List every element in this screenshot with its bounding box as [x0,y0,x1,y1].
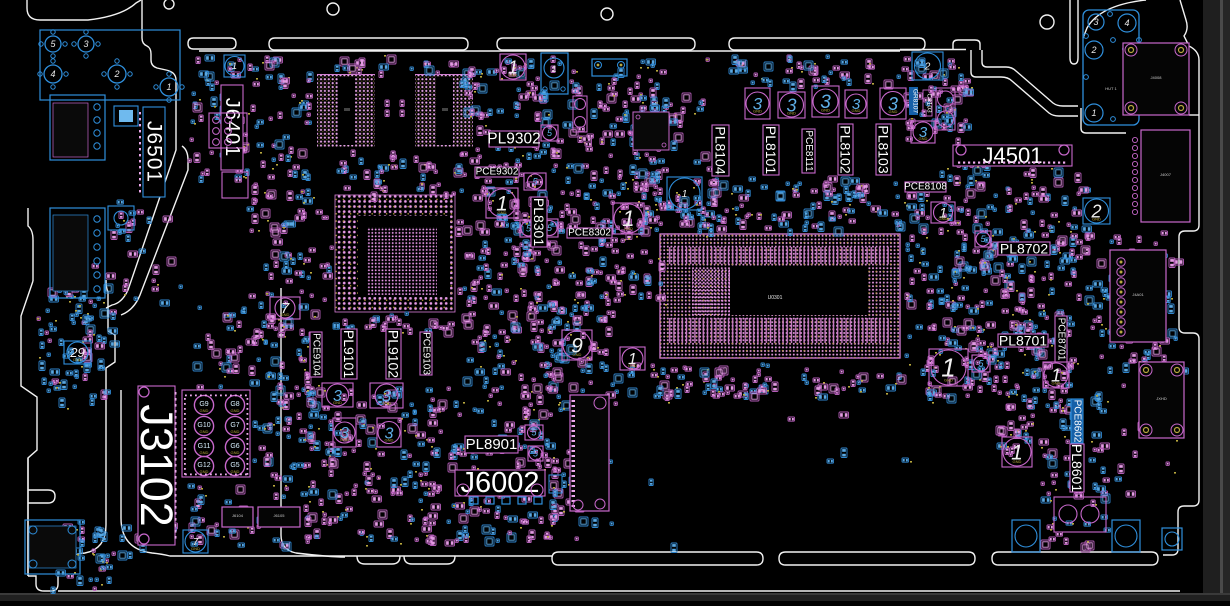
svg-text:PCE8108: PCE8108 [904,182,947,193]
svg-text:PCE8302: PCE8302 [568,228,611,239]
svg-text:PCE8602: PCE8602 [1072,400,1083,443]
svg-text:GND: GND [231,429,240,434]
svg-text:PL8102: PL8102 [838,125,854,173]
svg-text:GND: GND [1013,459,1022,464]
svg-text:GND: GND [281,312,290,317]
svg-text:G6: G6 [230,443,239,450]
svg-text:PL9102: PL9102 [386,330,402,378]
svg-text:GND: GND [231,469,240,474]
svg-text:GND: GND [191,546,200,551]
svg-text:GND: GND [498,210,507,215]
svg-text:HUT 1: HUT 1 [1105,86,1117,91]
svg-text:4: 4 [50,69,55,79]
svg-text:GND: GND [919,136,928,141]
svg-text:GND: GND [333,400,342,405]
svg-text:GR8107: GR8107 [912,89,919,114]
svg-text:GND: GND [1052,381,1061,386]
svg-text:G10: G10 [197,422,210,429]
svg-text:J6002: J6002 [460,467,539,499]
svg-text:2: 2 [1090,45,1096,55]
svg-text:GND: GND [1092,217,1101,222]
svg-text:G12: G12 [197,462,210,469]
svg-text:G7: G7 [230,422,239,429]
svg-text:PL9302: PL9302 [487,131,540,148]
svg-text:GND: GND [340,437,349,442]
svg-text:3: 3 [83,39,88,49]
svg-text:GND: GND [509,73,518,78]
svg-text:U0301: U0301 [768,295,783,301]
svg-text:PCE9302: PCE9302 [476,167,519,178]
svg-text:PL8901: PL8901 [466,436,518,453]
svg-text:GND: GND [200,429,209,434]
svg-text:PL8104: PL8104 [713,126,729,174]
svg-text:4: 4 [1124,18,1129,28]
svg-text:PL8601: PL8601 [1069,444,1085,492]
svg-text:JXHD: JXHD [1156,396,1167,401]
svg-text:3: 3 [1093,17,1098,27]
svg-text:1: 1 [1091,108,1096,118]
svg-text:GND: GND [382,401,391,406]
svg-text:G5: G5 [230,462,239,469]
svg-text:J4007: J4007 [1160,172,1172,177]
svg-text:GND: GND [944,378,953,383]
svg-text:GND: GND [231,408,240,413]
svg-text:GND: GND [624,226,633,231]
svg-text:1: 1 [166,82,171,92]
svg-text:2: 2 [924,62,931,73]
svg-text:PCE9103: PCE9103 [421,332,432,375]
svg-text:PL8701: PL8701 [999,333,1047,349]
svg-text:PL8101: PL8101 [763,126,779,174]
svg-text:G9: G9 [199,401,208,408]
svg-text:J6104: J6104 [232,513,244,518]
svg-text:GND: GND [753,109,762,114]
svg-text:G11: G11 [198,443,211,450]
svg-text:GND: GND [73,357,82,362]
svg-text:C8103: C8103 [926,93,933,113]
svg-text:1: 1 [682,189,688,200]
svg-text:J4008: J4008 [1151,75,1163,80]
svg-text:J4A01: J4A01 [1132,292,1144,297]
svg-text:G8: G8 [230,401,239,408]
svg-text:PL8702: PL8702 [1000,241,1048,257]
svg-text:GND: GND [200,450,209,455]
svg-text:PCE8111: PCE8111 [803,130,814,172]
svg-text:GND: GND [852,108,861,113]
svg-text:PL9101: PL9101 [341,330,357,378]
svg-text:GND: GND [821,108,830,113]
svg-text:J6501: J6501 [143,121,166,183]
svg-text:2: 2 [113,69,119,79]
svg-text:GND: GND [200,469,209,474]
svg-text:J6105: J6105 [274,513,286,518]
svg-text:1: 1 [551,64,556,74]
svg-text:1: 1 [232,61,237,71]
svg-text:PCE8701: PCE8701 [1056,318,1067,361]
svg-text:J4501: J4501 [983,143,1043,168]
svg-text:GND: GND [231,450,240,455]
svg-text:PCE9104: PCE9104 [311,333,322,376]
svg-text:GND: GND [200,408,209,413]
svg-text:GND: GND [889,109,898,114]
svg-text:PL8103: PL8103 [876,125,892,173]
svg-text:GND: GND [787,111,796,116]
svg-text:GND: GND [628,363,637,368]
svg-text:GND: GND [573,352,582,357]
svg-text:J3102: J3102 [131,404,182,527]
svg-text:PL8301: PL8301 [531,198,547,246]
svg-text:GND: GND [939,216,948,221]
svg-text:GND: GND [385,437,394,442]
